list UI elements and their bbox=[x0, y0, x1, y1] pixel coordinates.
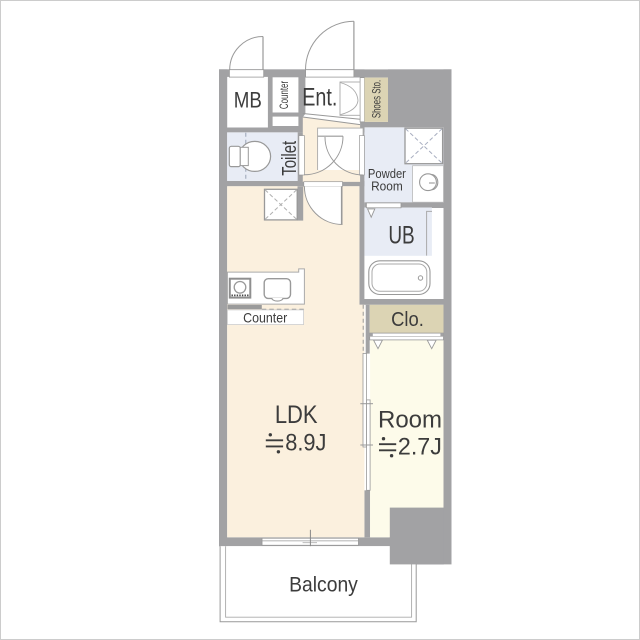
svg-text:Ent.: Ent. bbox=[302, 83, 337, 111]
svg-text:Counter: Counter bbox=[279, 80, 292, 109]
svg-text:Room: Room bbox=[371, 179, 403, 194]
svg-text:MB: MB bbox=[234, 88, 262, 113]
svg-text:Toilet: Toilet bbox=[278, 141, 301, 176]
svg-text:Shoes Sto.: Shoes Sto. bbox=[371, 80, 384, 118]
svg-text:Clo.: Clo. bbox=[391, 310, 424, 332]
svg-text:2.7J: 2.7J bbox=[398, 434, 442, 460]
svg-text:Counter: Counter bbox=[243, 310, 288, 326]
svg-text:8.9J: 8.9J bbox=[285, 429, 326, 456]
svg-text:Balcony: Balcony bbox=[289, 574, 359, 597]
svg-text:UB: UB bbox=[388, 221, 414, 249]
svg-text:Room: Room bbox=[378, 407, 442, 434]
svg-text:LDK: LDK bbox=[275, 401, 318, 429]
